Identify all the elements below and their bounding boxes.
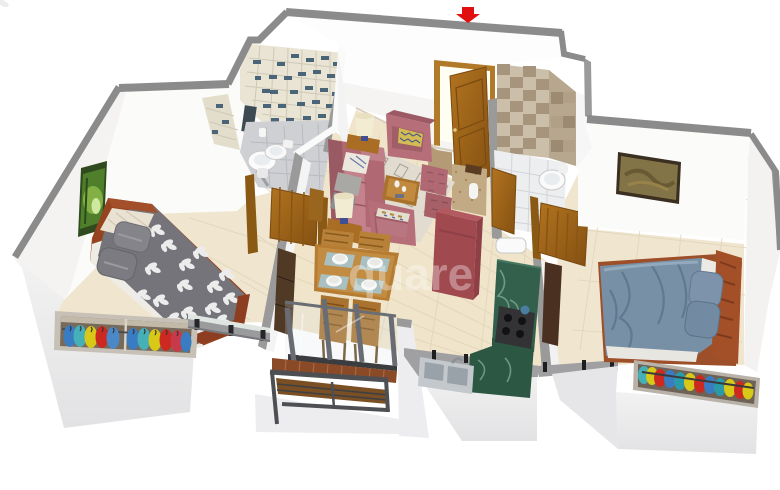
svg-text:quare: quare — [348, 248, 473, 300]
